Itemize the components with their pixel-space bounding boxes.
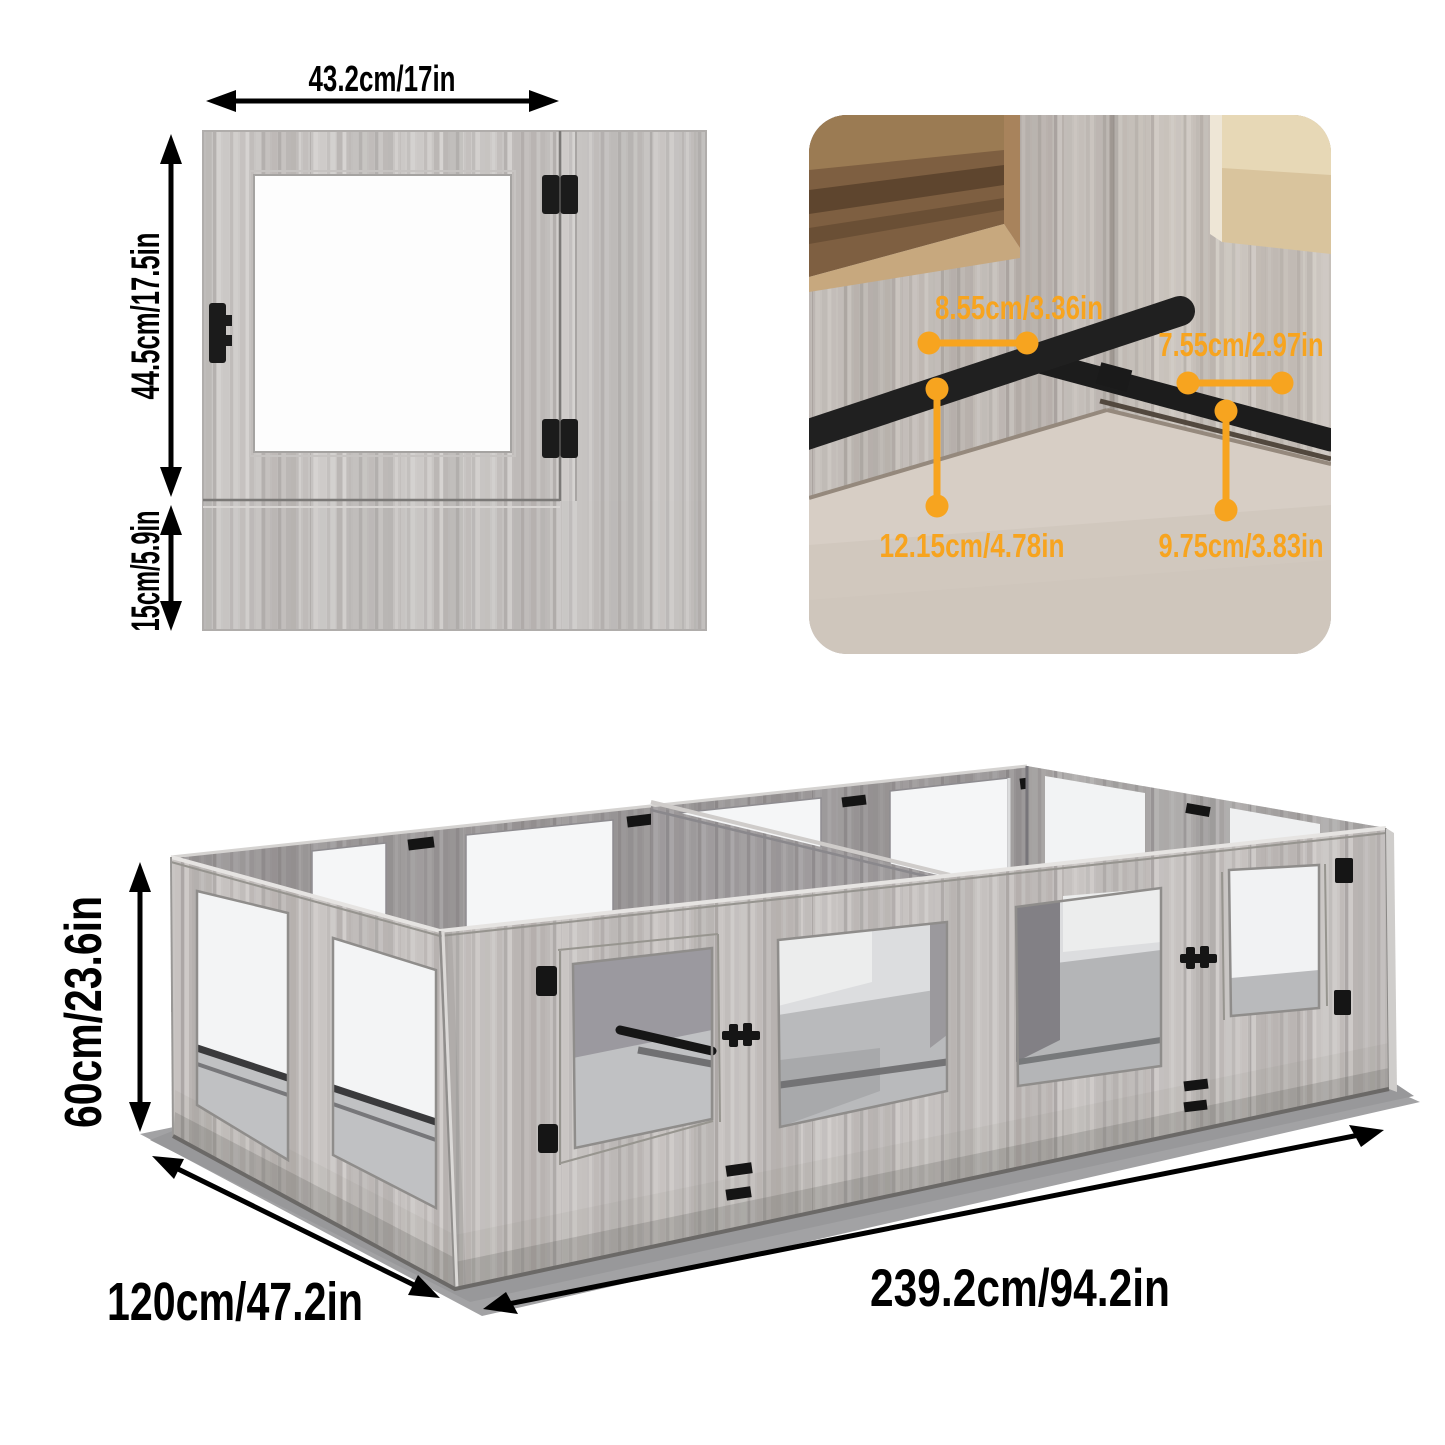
svg-text:9.75cm/3.83in: 9.75cm/3.83in	[1159, 527, 1324, 564]
svg-text:120cm/47.2in: 120cm/47.2in	[107, 1272, 363, 1332]
svg-text:239.2cm/94.2in: 239.2cm/94.2in	[870, 1259, 1170, 1318]
svg-text:43.2cm/17in: 43.2cm/17in	[309, 58, 456, 99]
svg-text:8.55cm/3.36in: 8.55cm/3.36in	[935, 289, 1103, 326]
svg-text:15cm/5.9in: 15cm/5.9in	[124, 511, 168, 632]
svg-text:44.5cm/17.5in: 44.5cm/17.5in	[124, 233, 168, 400]
svg-text:60cm/23.6in: 60cm/23.6in	[55, 896, 113, 1128]
svg-text:12.15cm/4.78in: 12.15cm/4.78in	[880, 527, 1065, 564]
svg-text:7.55cm/2.97in: 7.55cm/2.97in	[1159, 326, 1324, 363]
